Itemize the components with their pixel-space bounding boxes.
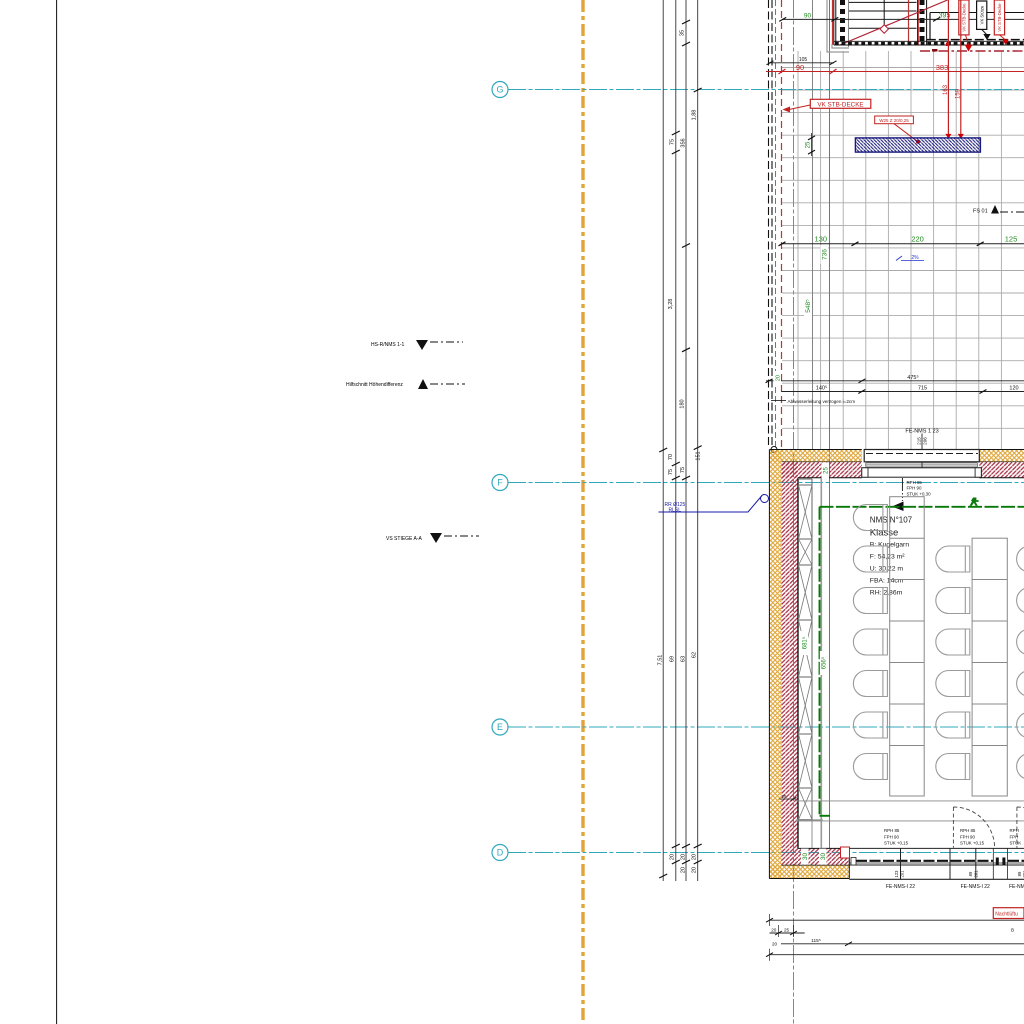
svg-text:656⁵: 656⁵ (821, 656, 828, 669)
svg-text:89: 89 (968, 871, 973, 876)
svg-text:90: 90 (804, 13, 812, 20)
svg-text:D: D (497, 848, 504, 858)
svg-text:75: 75 (668, 469, 674, 475)
svg-text:151: 151 (696, 451, 702, 460)
svg-text:159: 159 (955, 88, 961, 99)
svg-text:356: 356 (681, 138, 687, 147)
svg-text:120: 120 (1009, 386, 1018, 392)
svg-text:25: 25 (781, 794, 787, 799)
svg-text:30: 30 (820, 853, 827, 861)
svg-text:F: F (497, 478, 503, 488)
svg-text:69: 69 (670, 656, 676, 662)
svg-text:75: 75 (670, 139, 676, 145)
svg-text:NMS N°107: NMS N°107 (870, 516, 913, 525)
svg-text:VK Stütze: VK Stütze (980, 5, 985, 24)
svg-text:715: 715 (918, 386, 927, 392)
svg-text:FE-NM: FE-NM (1009, 884, 1024, 890)
svg-text:RPH 85: RPH 85 (884, 828, 900, 833)
svg-text:2%: 2% (911, 255, 919, 261)
svg-text:VK STB-DECKE: VK STB-DECKE (817, 101, 863, 108)
svg-text:20: 20 (772, 941, 778, 946)
svg-text:FS 01: FS 01 (973, 209, 988, 215)
svg-text:FE-NMS-I 22: FE-NMS-I 22 (961, 884, 990, 890)
svg-text:FBA: 14cm: FBA: 14cm (870, 578, 904, 585)
svg-text:140⁵: 140⁵ (816, 385, 827, 392)
svg-text:206: 206 (923, 437, 928, 445)
svg-text:20: 20 (771, 927, 777, 932)
svg-text:STUK: STUK (1010, 841, 1022, 846)
svg-text:125: 125 (1005, 234, 1018, 243)
svg-text:681⁵: 681⁵ (802, 636, 809, 649)
svg-text:20: 20 (681, 854, 687, 860)
svg-text:FPH 90: FPH 90 (884, 834, 899, 839)
svg-text:20: 20 (681, 867, 687, 873)
svg-text:STUK +0,15: STUK +0,15 (884, 841, 909, 846)
svg-text:STUK +0,15: STUK +0,15 (960, 841, 985, 846)
svg-text:62: 62 (692, 652, 698, 658)
svg-text:Abwasserleitung verzogen i=2cm: Abwasserleitung verzogen i=2cm (788, 399, 856, 404)
svg-text:20: 20 (692, 867, 698, 873)
svg-text:25: 25 (806, 141, 812, 148)
svg-text:220: 220 (911, 234, 924, 243)
svg-text:20: 20 (776, 375, 782, 381)
svg-text:VK STB-Decke: VK STB-Decke (962, 3, 967, 32)
svg-text:30: 30 (802, 853, 809, 861)
svg-text:RH: 2,86m: RH: 2,86m (870, 590, 903, 597)
svg-text:Klasse: Klasse (870, 528, 899, 539)
svg-text:RPH 85: RPH 85 (907, 480, 923, 485)
svg-text:W25 Z 20/0,25: W25 Z 20/0,25 (879, 118, 909, 123)
svg-text:548⁵: 548⁵ (805, 299, 812, 313)
svg-text:201: 201 (900, 870, 905, 878)
svg-text:115⁵: 115⁵ (811, 938, 821, 944)
svg-text:123: 123 (894, 870, 899, 878)
svg-text:25: 25 (823, 467, 829, 474)
svg-text:RPH: RPH (1010, 828, 1019, 833)
svg-text:FPH 90: FPH 90 (907, 486, 922, 491)
svg-text:130: 130 (815, 234, 828, 243)
svg-text:VS STIEGE A-A: VS STIEGE A-A (386, 536, 423, 542)
svg-text:736: 736 (822, 249, 829, 260)
svg-text:75: 75 (680, 467, 686, 473)
svg-text:215: 215 (916, 437, 921, 445)
svg-text:163: 163 (943, 84, 949, 95)
svg-text:25: 25 (784, 927, 790, 932)
svg-text:35: 35 (680, 30, 686, 36)
svg-text:STUK +0,30: STUK +0,30 (907, 491, 932, 496)
svg-text:20: 20 (670, 854, 676, 860)
svg-text:B: B (1011, 928, 1014, 933)
svg-text:FPH 90: FPH 90 (960, 834, 975, 839)
svg-text:475⁵: 475⁵ (907, 374, 918, 381)
svg-text:201: 201 (974, 870, 979, 878)
svg-text:90: 90 (796, 63, 804, 72)
svg-text:G: G (496, 85, 503, 95)
svg-text:HS-R/NMS 1-1: HS-R/NMS 1-1 (371, 342, 405, 348)
svg-text:Nachtlüftu: Nachtlüftu (995, 912, 1018, 918)
svg-text:63: 63 (681, 656, 687, 662)
svg-text:Hilfschnitt Höhendifferenz: Hilfschnitt Höhendifferenz (346, 382, 403, 388)
svg-text:20: 20 (692, 854, 698, 860)
svg-text:383: 383 (936, 63, 949, 72)
svg-text:1,88: 1,88 (692, 110, 698, 121)
svg-text:FE-NMS-I 22: FE-NMS-I 22 (886, 884, 915, 890)
svg-text:70: 70 (668, 454, 674, 460)
svg-text:VK STB-Decke: VK STB-Decke (997, 3, 1002, 32)
svg-text:180: 180 (680, 399, 686, 408)
svg-text:E: E (497, 722, 503, 732)
svg-text:3,28: 3,28 (668, 299, 674, 310)
svg-text:7,51: 7,51 (658, 655, 664, 666)
svg-text:FPH: FPH (1010, 834, 1019, 839)
svg-text:RPH 85: RPH 85 (960, 828, 976, 833)
svg-text:RLSL: RLSL (669, 508, 682, 514)
